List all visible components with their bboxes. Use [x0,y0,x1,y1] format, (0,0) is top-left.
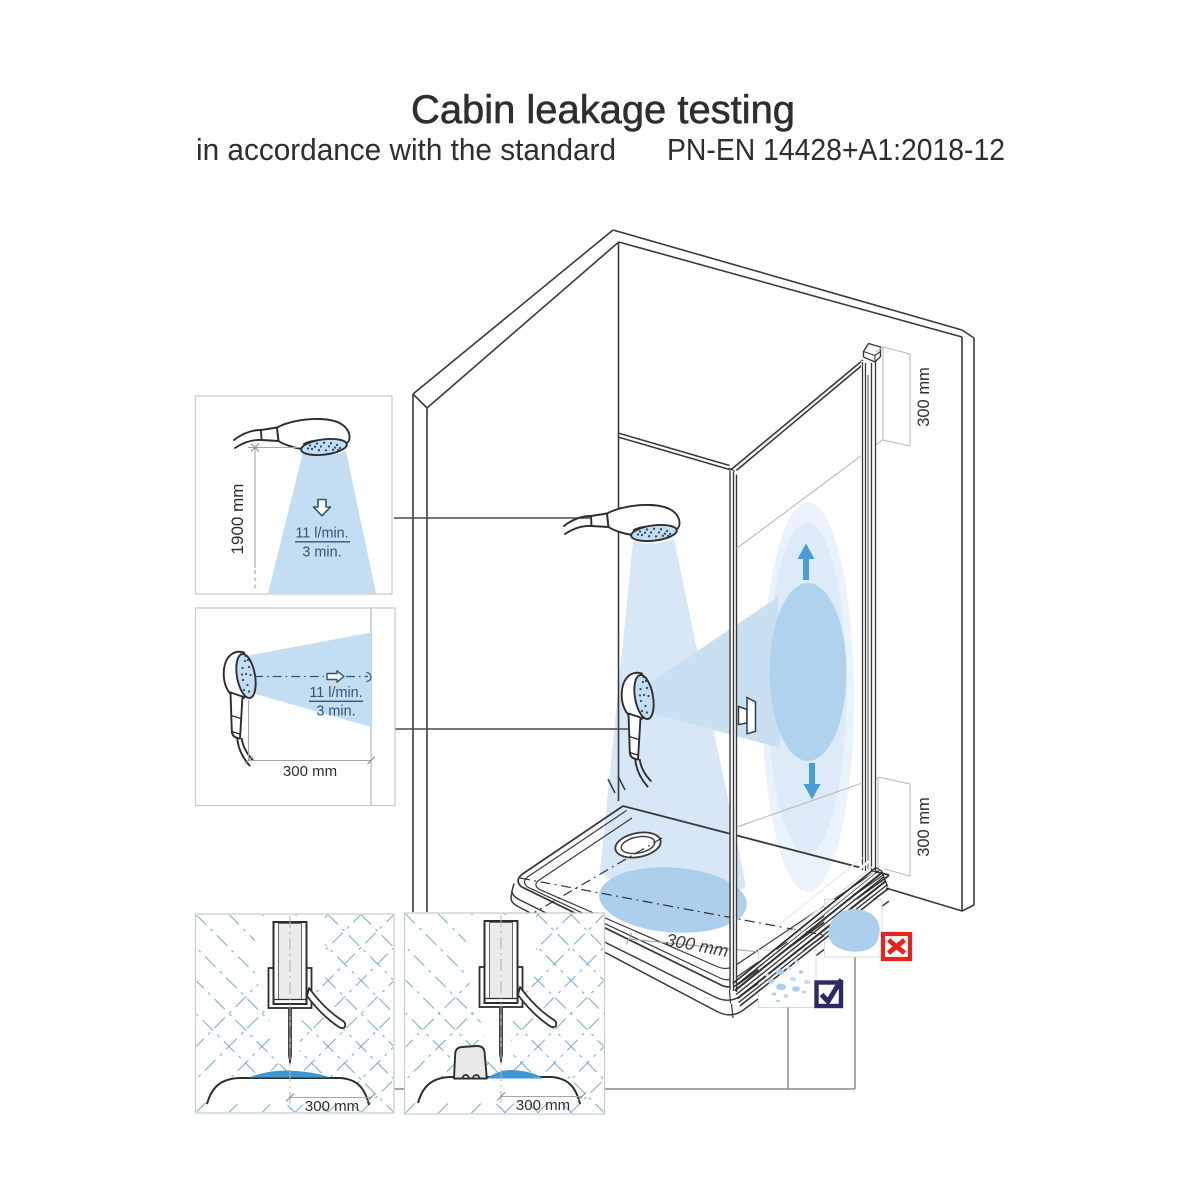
svg-text:Cabin leakage testing: Cabin leakage testing [411,88,795,132]
svg-text:PN-EN 14428+A1:2018-12: PN-EN 14428+A1:2018-12 [667,132,1005,167]
svg-text:300 mm: 300 mm [305,1098,359,1115]
svg-text:1900 mm: 1900 mm [228,484,247,555]
svg-text:300 mm: 300 mm [915,367,933,427]
svg-text:3 min.: 3 min. [316,704,355,720]
svg-text:300 mm: 300 mm [283,763,337,780]
svg-text:3 min.: 3 min. [302,545,341,561]
svg-text:11 l/min.: 11 l/min. [295,526,348,542]
svg-text:11 l/min.: 11 l/min. [309,685,362,701]
svg-text:300 mm: 300 mm [516,1097,570,1114]
svg-text:in accordance with the standar: in accordance with the standard [196,132,616,167]
svg-text:300 mm: 300 mm [915,797,933,857]
